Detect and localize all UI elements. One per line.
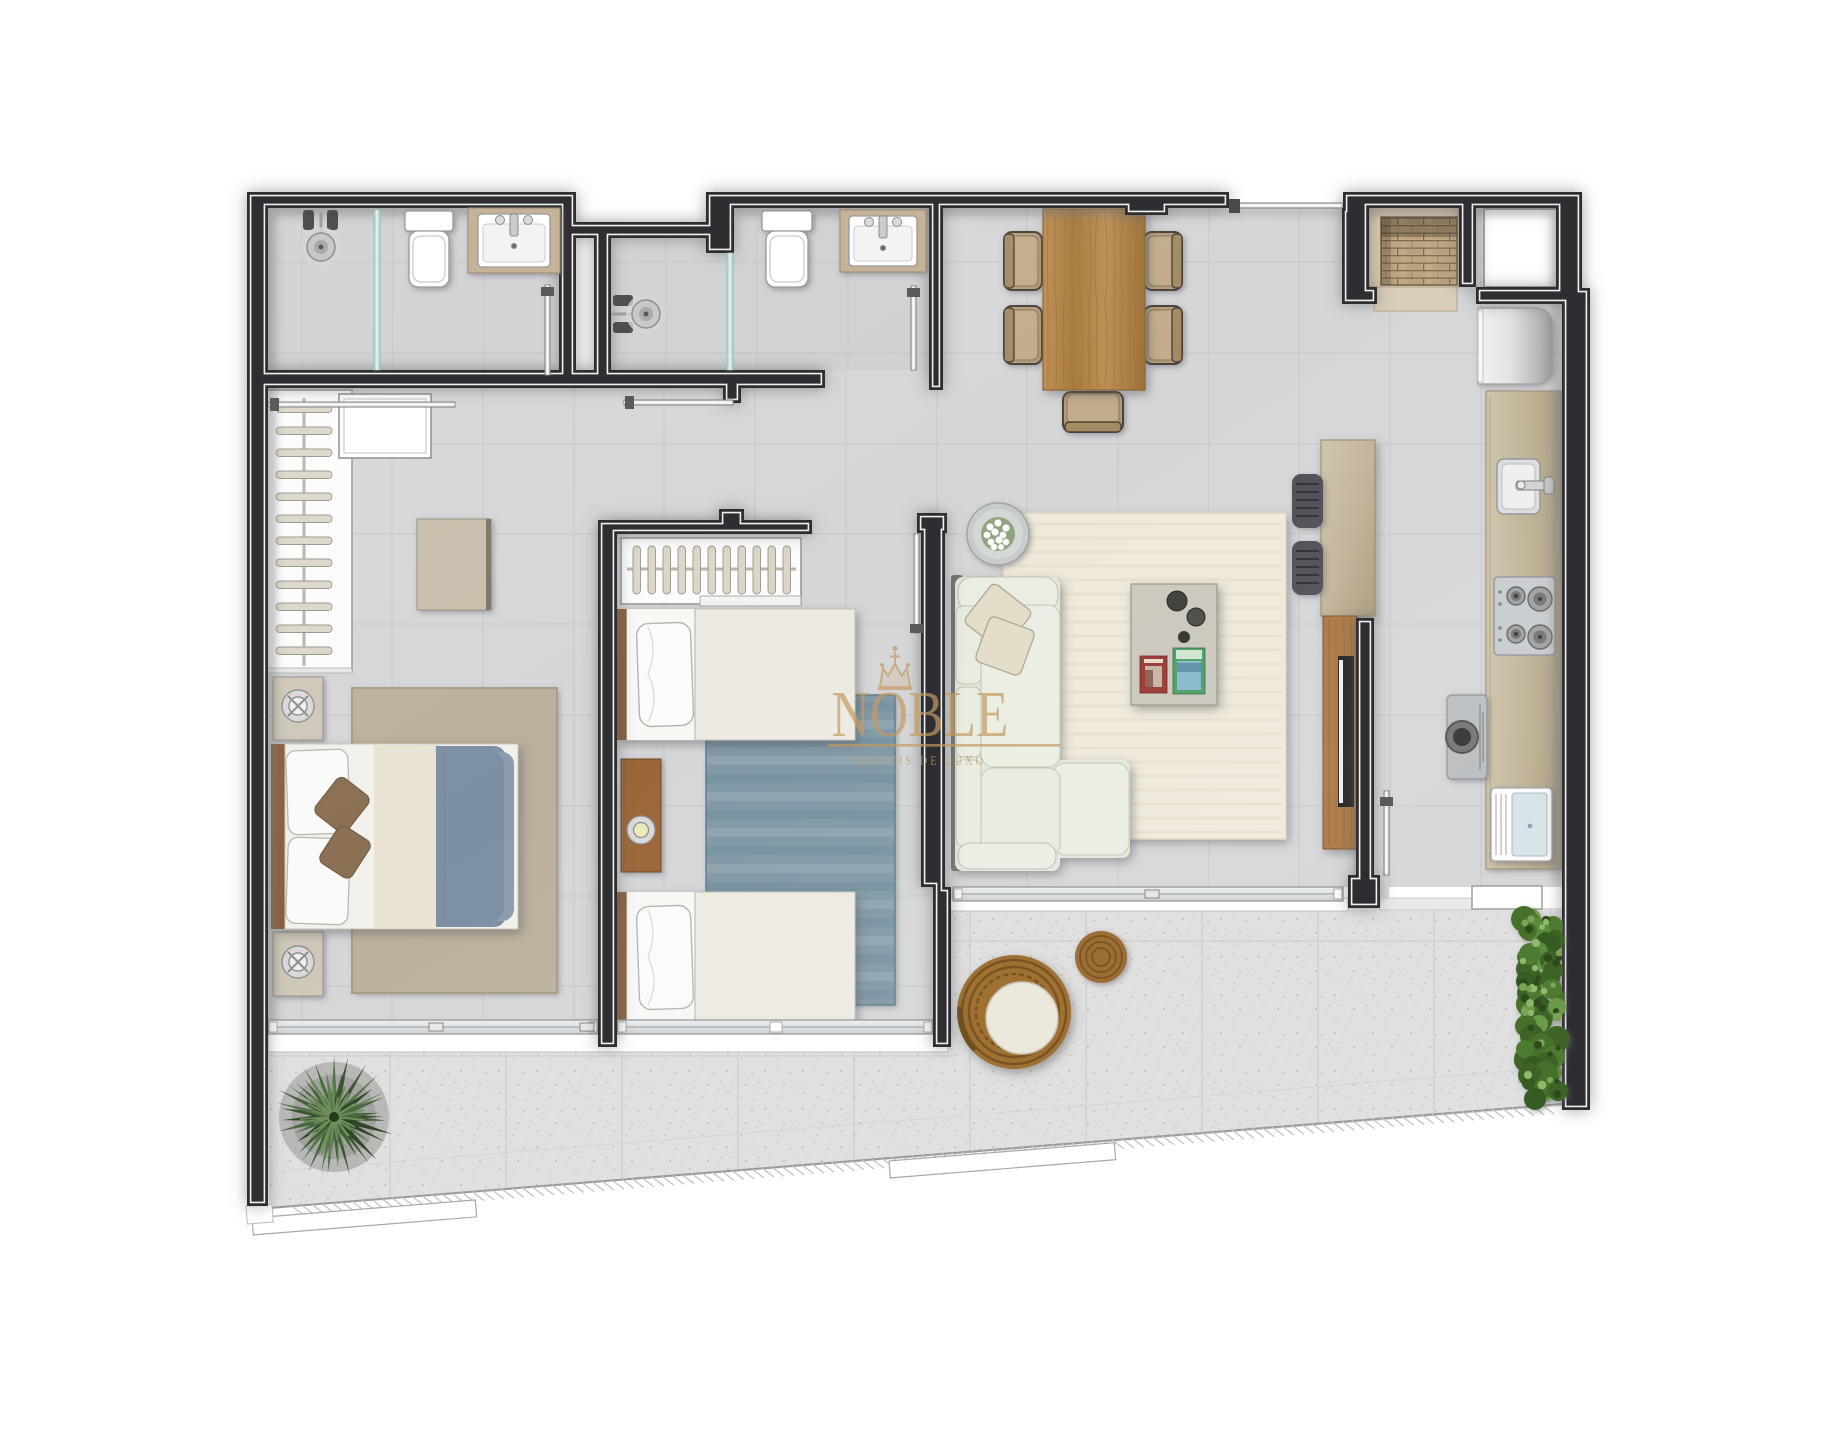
svg-text:IMÓVEIS DE LUXO: IMÓVEIS DE LUXO xyxy=(850,753,986,768)
svg-text:NOBLE: NOBLE xyxy=(832,678,1009,751)
